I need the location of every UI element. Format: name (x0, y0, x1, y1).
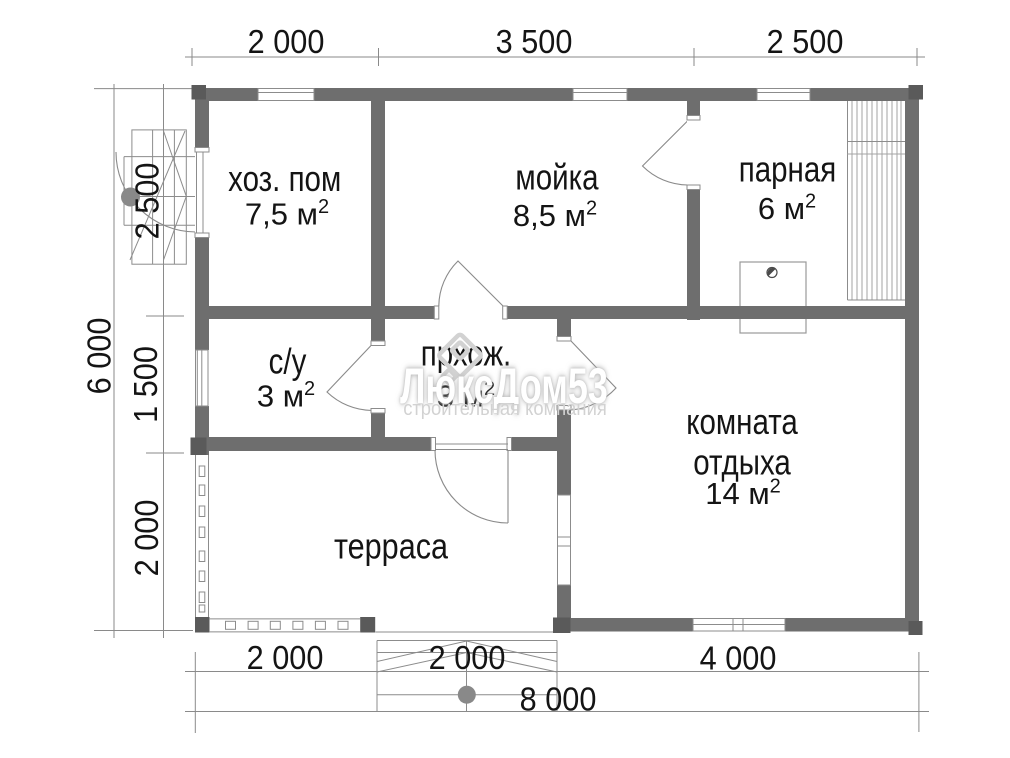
svg-text:2 000: 2 000 (248, 23, 325, 60)
svg-text:14 м2: 14 м2 (705, 475, 781, 511)
svg-text:4 000: 4 000 (700, 640, 777, 677)
svg-text:2 000: 2 000 (128, 500, 165, 577)
svg-text:с/у: с/у (269, 340, 307, 380)
svg-text:терраса: терраса (334, 527, 448, 567)
svg-text:6 000: 6 000 (80, 318, 117, 395)
svg-text:парная: парная (739, 149, 836, 189)
svg-text:2 500: 2 500 (767, 23, 844, 60)
svg-text:2 000: 2 000 (247, 639, 324, 676)
svg-text:8 000: 8 000 (520, 680, 597, 717)
svg-text:2 000: 2 000 (429, 639, 506, 676)
svg-text:3 500: 3 500 (496, 23, 573, 60)
svg-text:7,5 м2: 7,5 м2 (245, 196, 329, 232)
svg-text:хоз. пом: хоз. пом (228, 158, 341, 198)
svg-text:8,5 м2: 8,5 м2 (513, 197, 597, 233)
svg-text:2 500: 2 500 (128, 163, 165, 240)
svg-text:1 500: 1 500 (127, 346, 164, 423)
svg-text:строительная компания: строительная компания (403, 398, 607, 420)
svg-text:комната: комната (686, 401, 798, 441)
svg-text:мойка: мойка (515, 157, 599, 197)
